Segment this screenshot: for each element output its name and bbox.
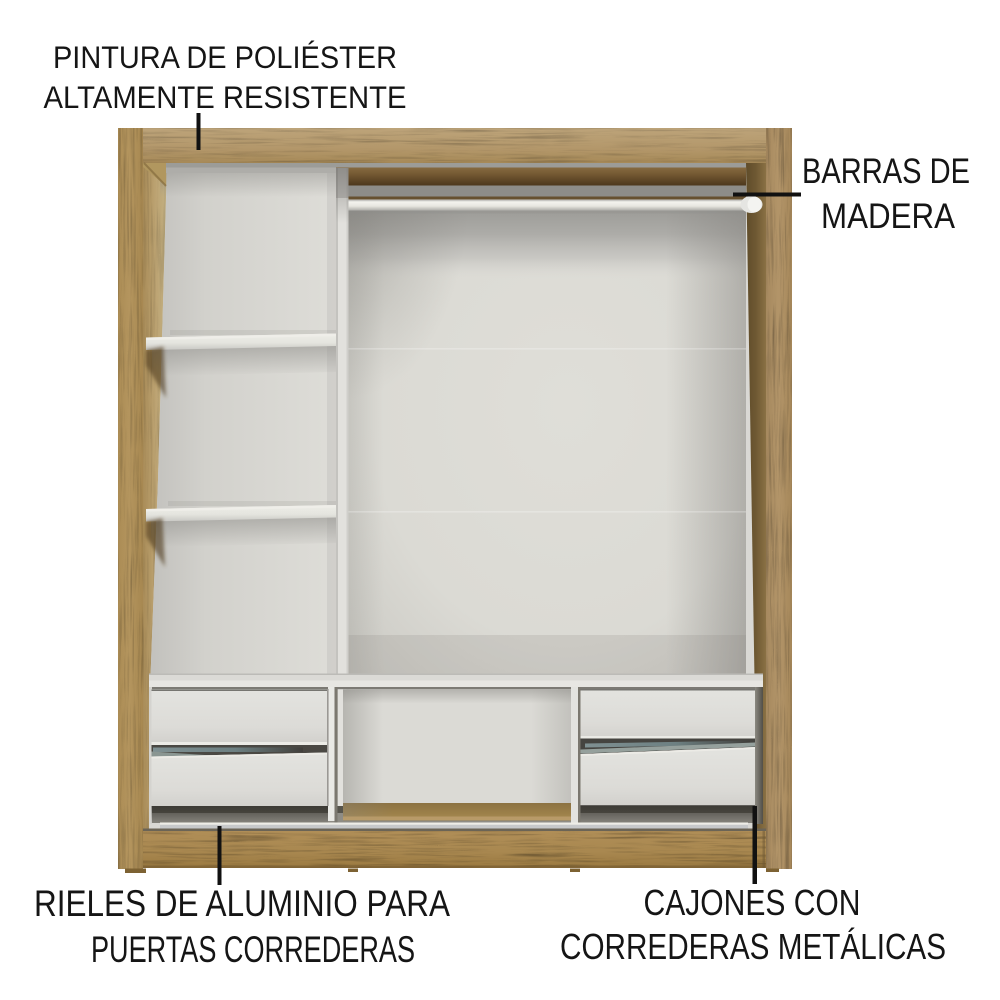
- svg-text:BARRAS DE: BARRAS DE: [802, 151, 970, 191]
- svg-text:CORREDERAS METÁLICAS: CORREDERAS METÁLICAS: [560, 926, 946, 967]
- svg-text:PINTURA DE POLIÉSTER: PINTURA DE POLIÉSTER: [53, 39, 397, 75]
- svg-text:CAJONES CON: CAJONES CON: [644, 882, 861, 923]
- svg-text:RIELES DE ALUMINIO PARA: RIELES DE ALUMINIO PARA: [34, 883, 450, 924]
- svg-text:PUERTAS CORREDERAS: PUERTAS CORREDERAS: [91, 929, 415, 970]
- svg-text:MADERA: MADERA: [821, 196, 955, 236]
- svg-text:ALTAMENTE RESISTENTE: ALTAMENTE RESISTENTE: [44, 79, 407, 115]
